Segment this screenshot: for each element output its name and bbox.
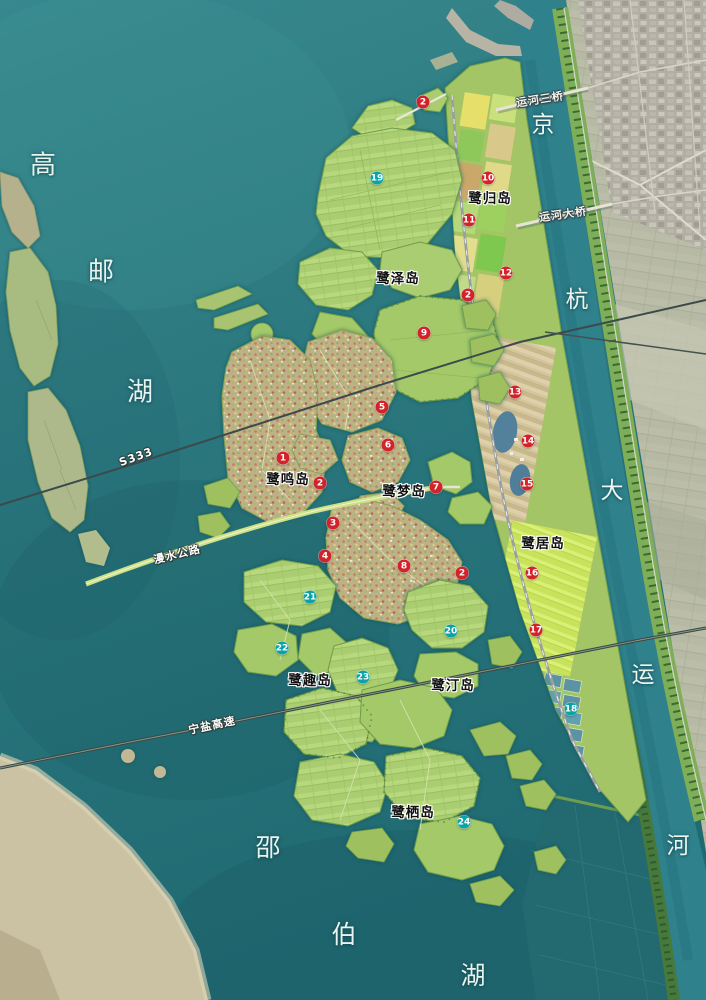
map-artwork — [0, 0, 706, 1000]
map-canvas: 高邮湖邵伯湖京杭大运河鹭归岛鹭泽岛鹭鸣岛鹭梦岛鹭居岛鹭趣岛鹭汀岛鹭栖岛S333漫… — [0, 0, 706, 1000]
